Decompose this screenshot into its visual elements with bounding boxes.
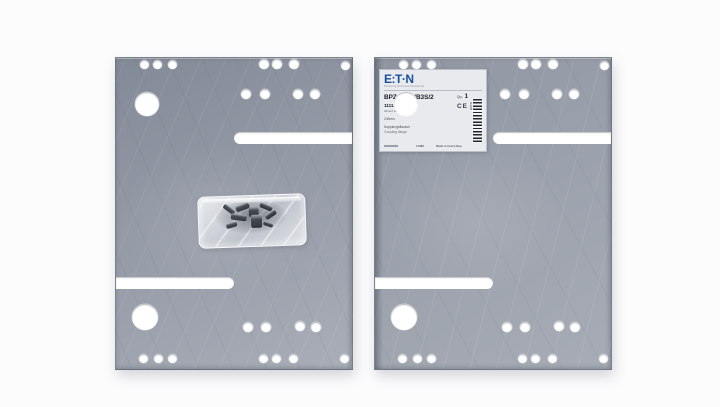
mounting-hole bbox=[518, 59, 528, 69]
mounting-hole bbox=[259, 354, 268, 363]
plate-left bbox=[115, 57, 353, 370]
mounting-hole bbox=[570, 322, 580, 332]
mounting-hole bbox=[427, 60, 436, 69]
mounting-hole bbox=[289, 354, 298, 363]
mounting-hole bbox=[548, 354, 557, 363]
mounting-hole bbox=[139, 354, 148, 363]
mounting-hole bbox=[413, 354, 422, 363]
description-german: Kupplungsflansch bbox=[384, 125, 410, 129]
screw bbox=[251, 215, 262, 228]
mounting-hole bbox=[599, 354, 608, 363]
quantity-value: 1 bbox=[465, 94, 468, 100]
mounting-hole bbox=[310, 89, 320, 99]
mounting-hole bbox=[168, 60, 177, 69]
mounting-hole bbox=[132, 304, 158, 330]
mounting-hole bbox=[293, 89, 303, 99]
slot-cutout bbox=[234, 132, 352, 144]
product-photo: E:T·N Powering Business Worldwide BPZ-BR… bbox=[0, 0, 720, 407]
mounting-hole bbox=[548, 59, 558, 69]
dimension-text: 240mm bbox=[384, 117, 395, 121]
mounting-hole bbox=[554, 321, 564, 331]
mounting-hole bbox=[341, 61, 350, 70]
mounting-hole bbox=[394, 92, 418, 116]
screw-bag bbox=[197, 193, 307, 249]
mounting-hole bbox=[427, 354, 436, 363]
footer-fineprint bbox=[384, 145, 398, 147]
barcode-digits: 111128 bbox=[469, 102, 472, 110]
mounting-hole bbox=[272, 354, 281, 363]
mounting-hole bbox=[531, 59, 541, 69]
mounting-hole bbox=[135, 92, 159, 116]
mounting-hole bbox=[520, 322, 530, 332]
mounting-hole bbox=[243, 322, 253, 332]
label-footer: 1438K Made in Czech Rep. bbox=[384, 144, 470, 148]
mounting-hole bbox=[154, 354, 163, 363]
description-english: Coupling flange bbox=[384, 130, 407, 134]
eaton-brand-text: E:T·N bbox=[384, 73, 482, 85]
mounting-hole bbox=[295, 321, 305, 331]
mounting-hole bbox=[272, 59, 282, 69]
mounting-hole bbox=[140, 60, 149, 69]
mounting-hole bbox=[260, 89, 270, 99]
eaton-logo: E:T·N Powering Business Worldwide bbox=[384, 73, 482, 91]
mounting-hole bbox=[289, 59, 299, 69]
slot-cutout bbox=[493, 132, 611, 144]
eaton-tagline: Powering Business Worldwide bbox=[384, 85, 482, 88]
mounting-hole bbox=[311, 322, 321, 332]
mounting-hole bbox=[600, 61, 609, 70]
ce-mark: CE bbox=[457, 103, 468, 110]
mounting-hole bbox=[502, 322, 512, 332]
quantity-label: Qty. bbox=[457, 95, 463, 99]
mounting-hole bbox=[340, 354, 349, 363]
mounting-hole bbox=[168, 354, 177, 363]
quantity: Qty.1 bbox=[457, 94, 468, 100]
mounting-hole bbox=[391, 304, 417, 330]
country-of-origin: Made in Czech Rep. bbox=[436, 144, 462, 148]
plate-right: E:T·N Powering Business Worldwide BPZ-BR… bbox=[374, 57, 612, 370]
mounting-hole bbox=[519, 89, 529, 99]
slot-cutout bbox=[116, 277, 234, 289]
mounting-hole bbox=[398, 354, 407, 363]
barcode bbox=[473, 99, 482, 142]
mounting-hole bbox=[552, 89, 562, 99]
mounting-hole bbox=[569, 89, 579, 99]
mounting-hole bbox=[241, 89, 251, 99]
footer-code: 1438K bbox=[416, 144, 424, 148]
mounting-hole bbox=[399, 60, 408, 69]
mounting-hole bbox=[531, 354, 540, 363]
mounting-hole bbox=[259, 59, 269, 69]
slot-cutout bbox=[375, 277, 493, 289]
mounting-hole bbox=[412, 60, 421, 69]
mounting-hole bbox=[500, 89, 510, 99]
mounting-hole bbox=[518, 354, 527, 363]
mounting-hole bbox=[261, 322, 271, 332]
mounting-hole bbox=[153, 60, 162, 69]
